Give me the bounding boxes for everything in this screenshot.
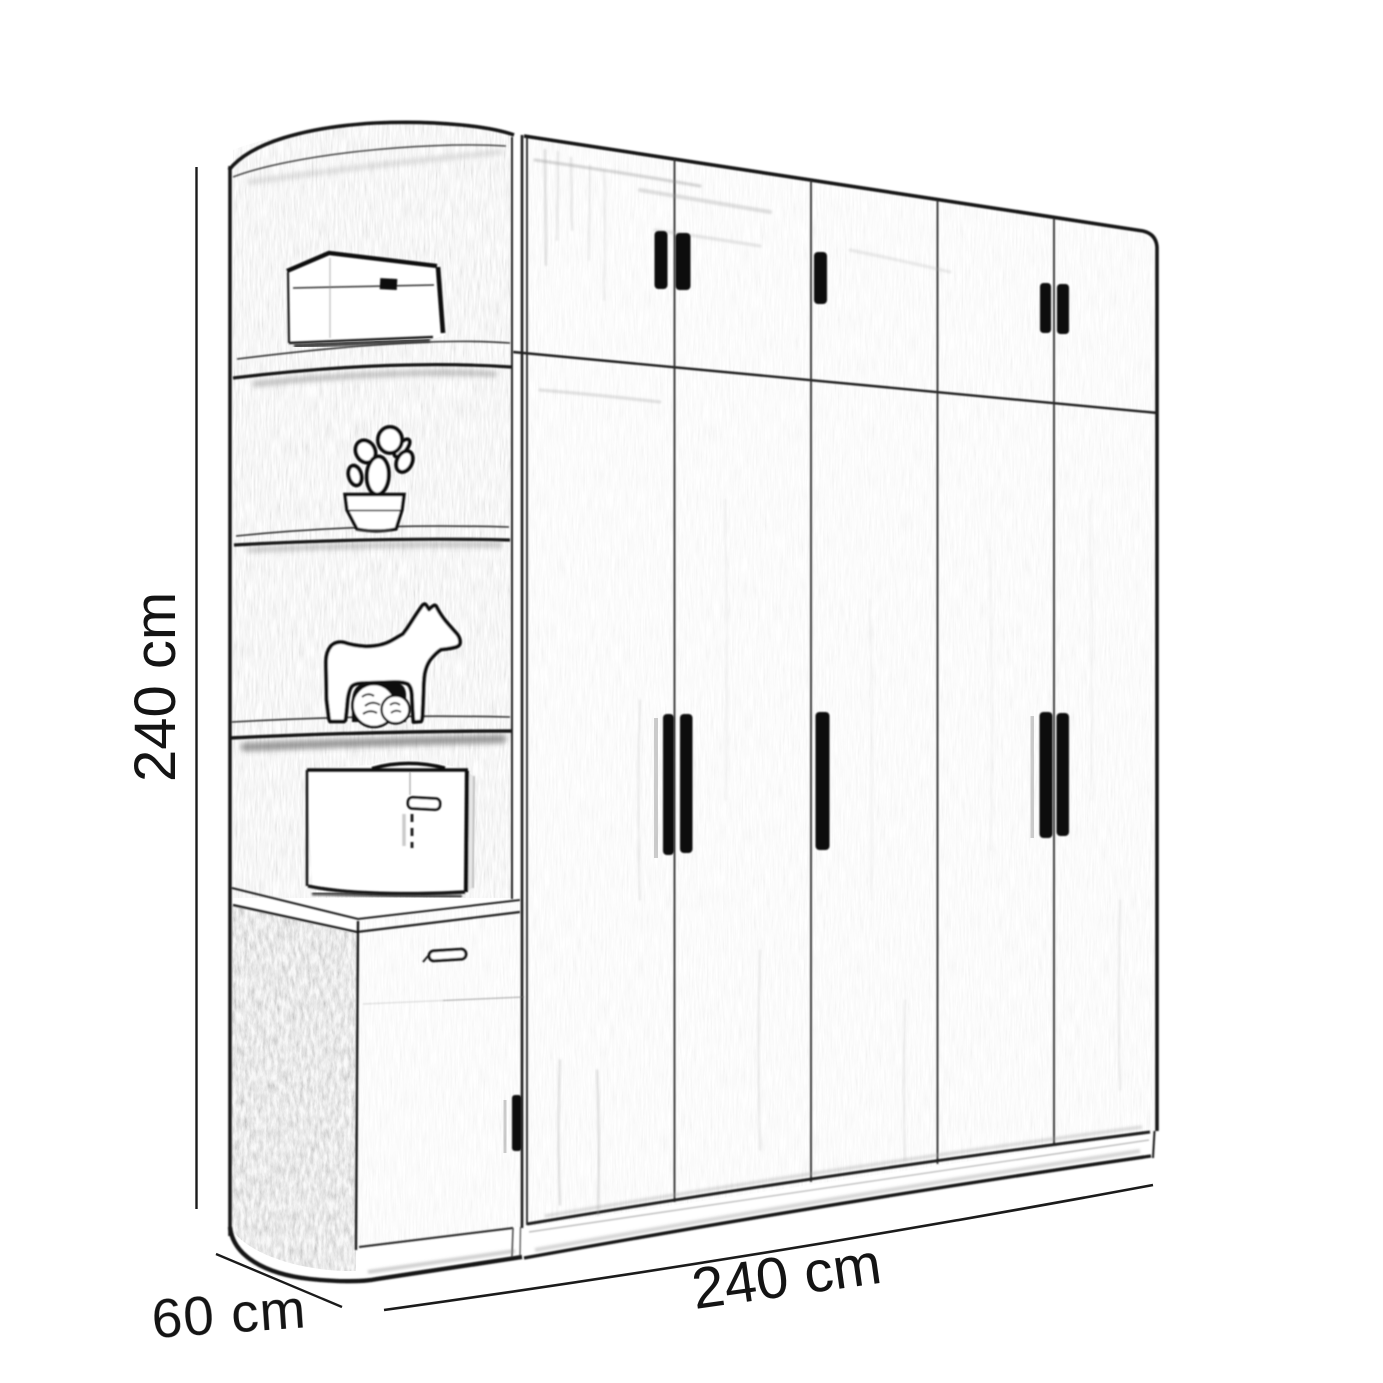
svg-text:240 cm: 240 cm	[123, 592, 188, 782]
svg-text:60 cm: 60 cm	[150, 1277, 309, 1350]
